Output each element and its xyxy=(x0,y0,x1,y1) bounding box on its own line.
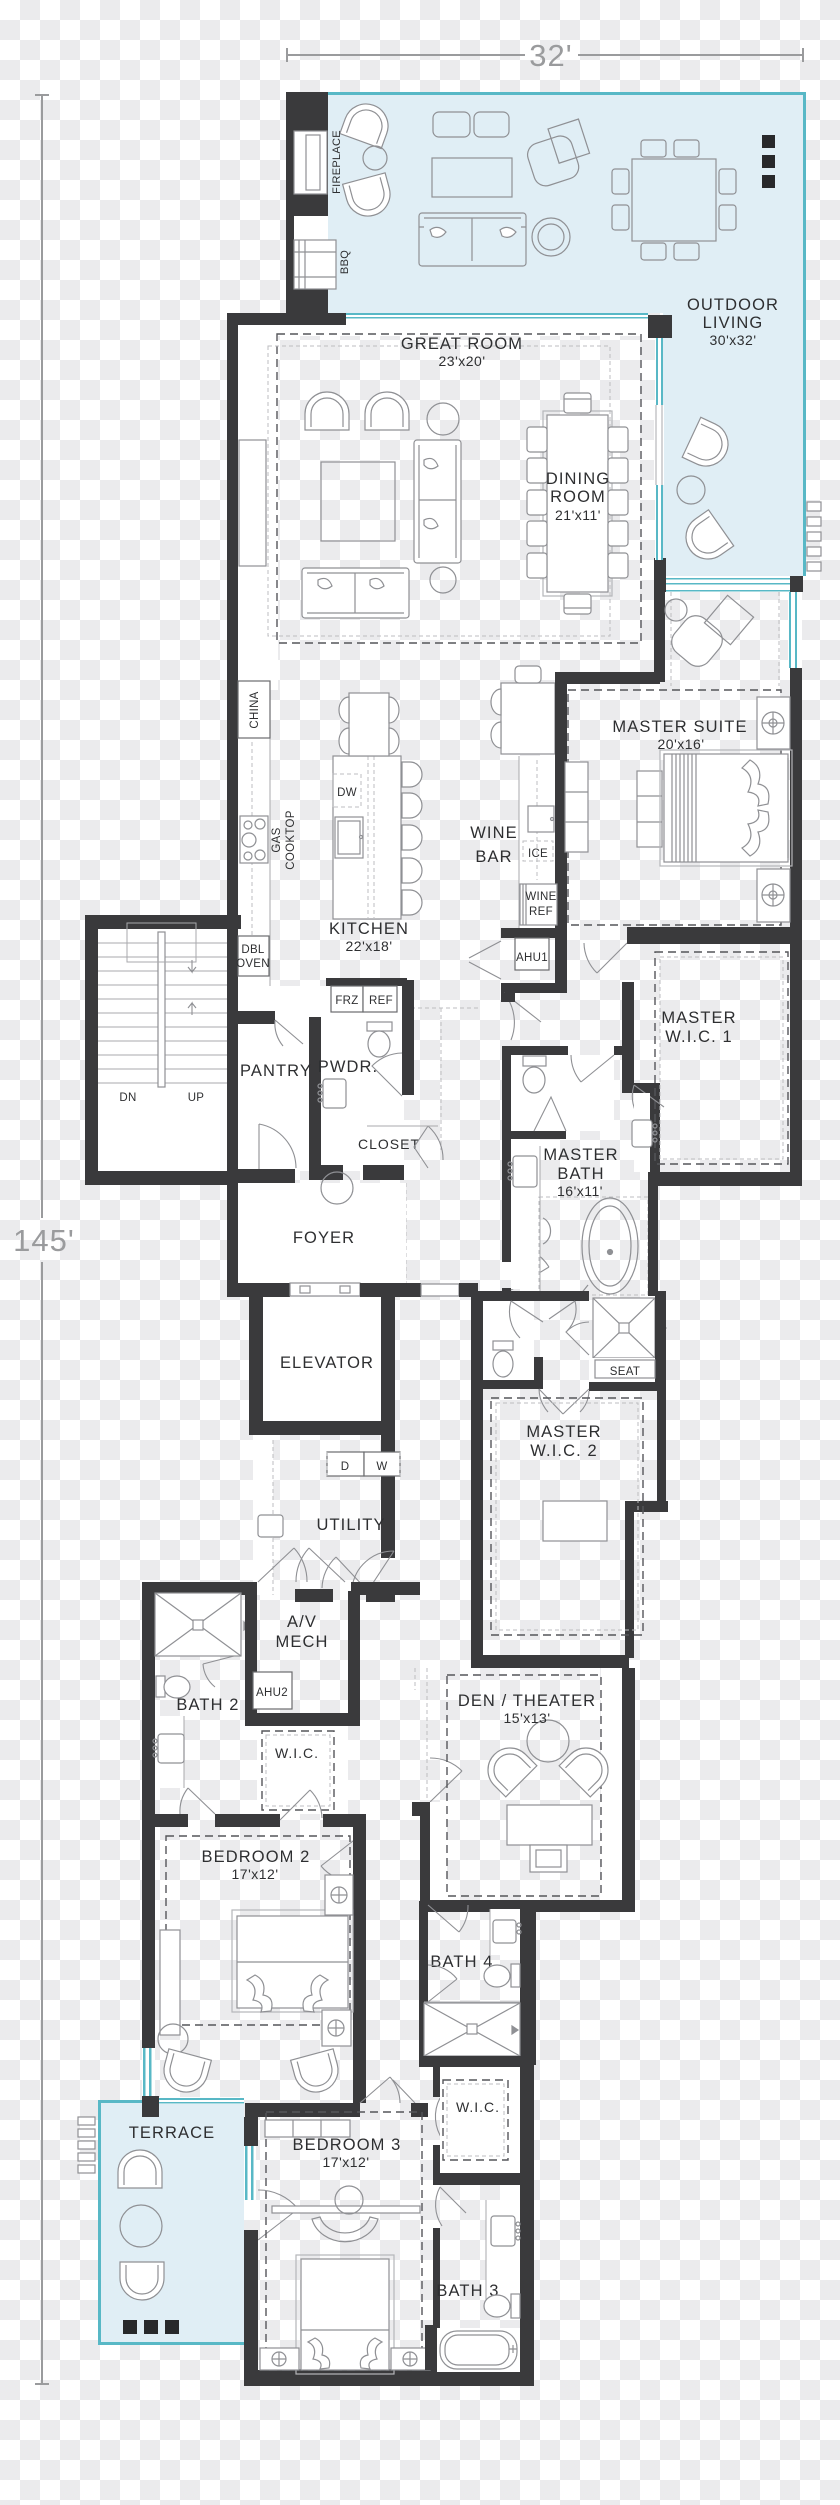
svg-text:BBQ: BBQ xyxy=(339,250,351,274)
svg-text:W.I.C. 2: W.I.C. 2 xyxy=(530,1442,597,1460)
svg-text:MECH: MECH xyxy=(276,1633,329,1651)
svg-text:BEDROOM 3: BEDROOM 3 xyxy=(293,2136,402,2154)
svg-text:BATH 4: BATH 4 xyxy=(430,1953,493,1971)
svg-text:GREAT ROOM: GREAT ROOM xyxy=(401,335,523,353)
svg-text:GAS: GAS xyxy=(271,827,283,852)
svg-text:22'x18': 22'x18' xyxy=(346,938,393,954)
svg-text:15'x13': 15'x13' xyxy=(504,1710,551,1726)
svg-text:CLOSET: CLOSET xyxy=(358,1136,420,1152)
svg-text:DBL: DBL xyxy=(241,944,265,956)
svg-text:AHU2: AHU2 xyxy=(256,1687,288,1699)
svg-text:A/V: A/V xyxy=(287,1613,317,1631)
svg-text:UTILITY: UTILITY xyxy=(316,1516,385,1534)
svg-text:DW: DW xyxy=(337,787,357,799)
svg-text:UP: UP xyxy=(188,1092,205,1104)
svg-text:DN: DN xyxy=(119,1092,136,1104)
svg-text:FOYER: FOYER xyxy=(293,1229,355,1247)
svg-text:W.I.C.: W.I.C. xyxy=(456,2099,500,2115)
svg-text:DEN / THEATER: DEN / THEATER xyxy=(458,1692,596,1710)
svg-text:MASTER: MASTER xyxy=(526,1423,601,1441)
svg-text:W.I.C.: W.I.C. xyxy=(275,1745,319,1761)
svg-text:D: D xyxy=(341,1461,350,1473)
svg-text:17'x12': 17'x12' xyxy=(323,2154,370,2170)
svg-text:32': 32' xyxy=(529,38,572,73)
svg-text:BATH 2: BATH 2 xyxy=(176,1696,239,1714)
svg-text:BAR: BAR xyxy=(475,848,512,866)
svg-text:BATH: BATH xyxy=(557,1165,604,1183)
svg-text:30'x32': 30'x32' xyxy=(710,332,757,348)
svg-text:CHINA: CHINA xyxy=(249,691,261,728)
svg-text:ICE: ICE xyxy=(528,848,548,860)
svg-text:23'x20': 23'x20' xyxy=(439,353,486,369)
svg-text:MASTER: MASTER xyxy=(661,1009,736,1027)
svg-text:ROOM: ROOM xyxy=(550,488,606,506)
svg-text:145': 145' xyxy=(13,1223,75,1258)
svg-text:TERRACE: TERRACE xyxy=(129,2124,216,2142)
svg-text:WINE: WINE xyxy=(525,891,556,903)
svg-text:OVEN: OVEN xyxy=(236,958,270,970)
svg-text:LIVING: LIVING xyxy=(703,314,764,332)
svg-text:REF: REF xyxy=(529,906,553,918)
svg-text:W.I.C. 1: W.I.C. 1 xyxy=(665,1028,732,1046)
svg-text:AHU1: AHU1 xyxy=(516,952,548,964)
svg-text:ELEVATOR: ELEVATOR xyxy=(280,1354,374,1372)
svg-text:20'x16': 20'x16' xyxy=(658,736,705,752)
svg-text:21'x11': 21'x11' xyxy=(555,507,601,523)
svg-text:FRZ: FRZ xyxy=(335,995,358,1007)
svg-text:W: W xyxy=(376,1461,387,1473)
svg-text:BEDROOM 2: BEDROOM 2 xyxy=(202,1848,311,1866)
svg-text:MASTER: MASTER xyxy=(543,1146,618,1164)
svg-text:COOKTOP: COOKTOP xyxy=(285,810,297,869)
svg-text:MASTER SUITE: MASTER SUITE xyxy=(612,718,747,736)
svg-text:FIREPLACE: FIREPLACE xyxy=(331,130,343,194)
svg-text:WINE: WINE xyxy=(470,824,517,842)
svg-text:17'x12': 17'x12' xyxy=(232,1866,279,1882)
svg-text:PANTRY: PANTRY xyxy=(240,1062,312,1080)
svg-text:DINING: DINING xyxy=(546,470,610,488)
svg-text:OUTDOOR: OUTDOOR xyxy=(687,296,779,314)
svg-text:REF: REF xyxy=(369,995,393,1007)
svg-text:SEAT: SEAT xyxy=(610,1366,640,1378)
svg-text:PWDR.: PWDR. xyxy=(318,1058,379,1076)
svg-text:KITCHEN: KITCHEN xyxy=(329,920,409,938)
